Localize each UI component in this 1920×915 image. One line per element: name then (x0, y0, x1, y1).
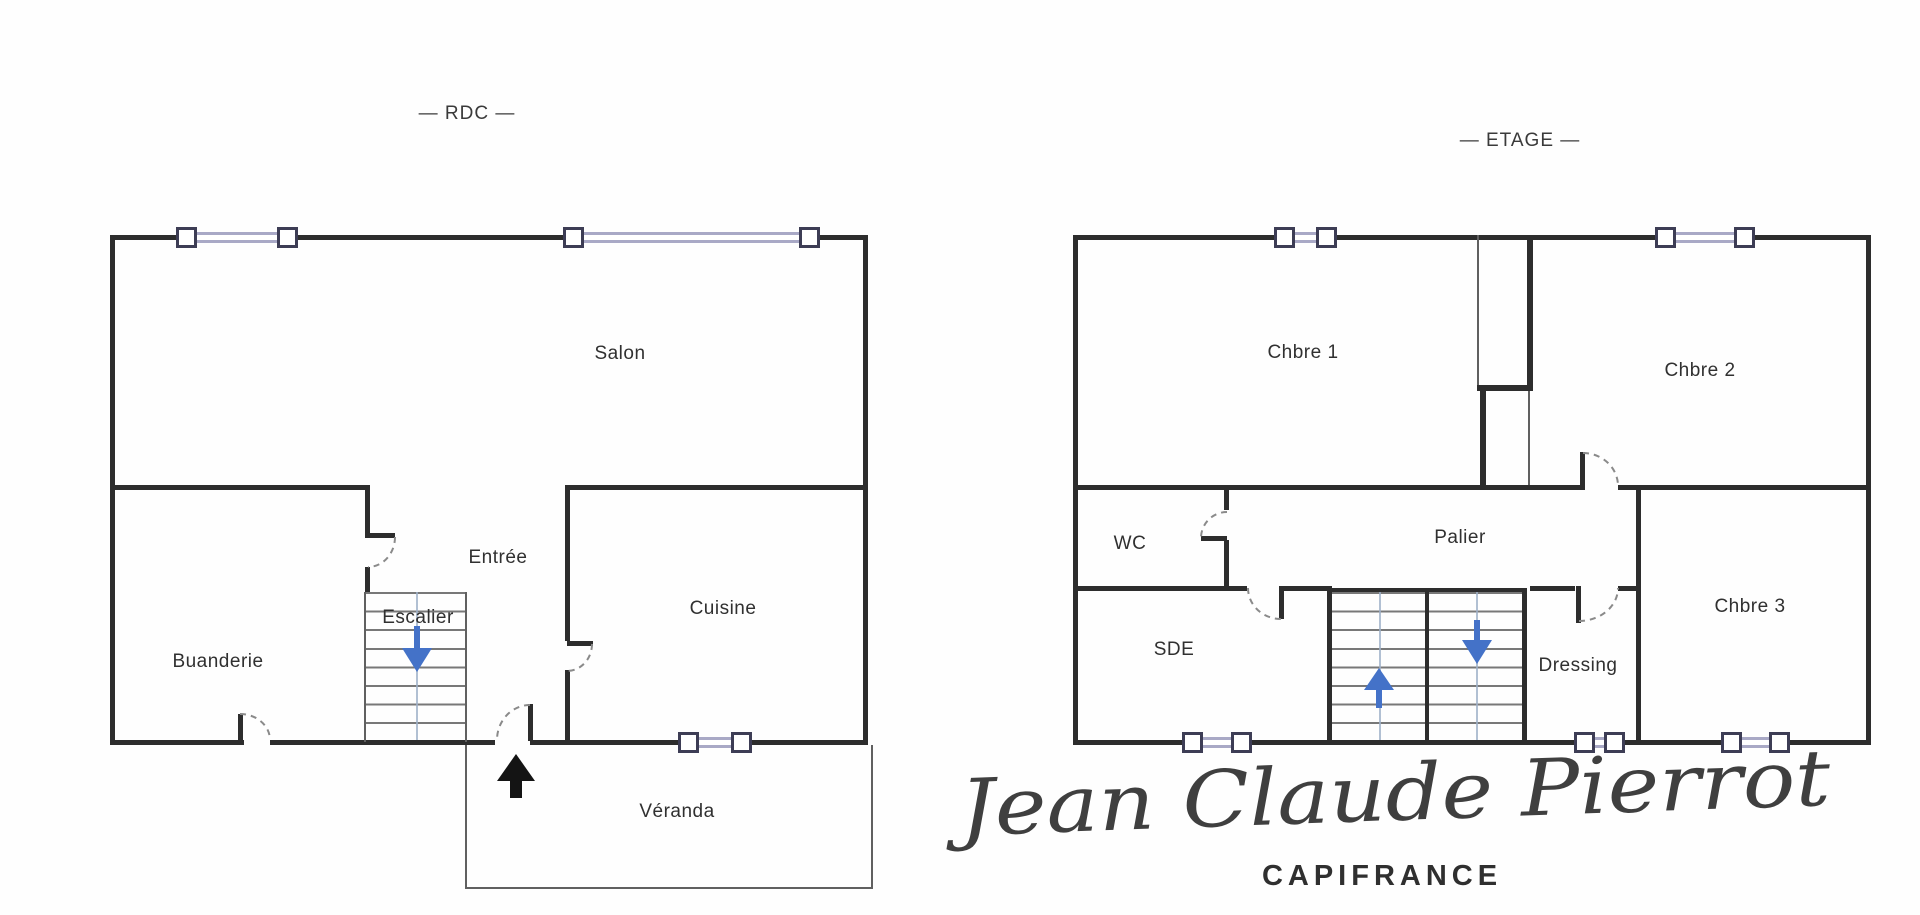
room-label-wc: WC (1114, 533, 1147, 555)
room-label-buanderie: Buanderie (172, 651, 263, 673)
window-icon (1655, 227, 1756, 248)
door-swing-icon (240, 714, 270, 740)
stairs-edge (465, 592, 467, 742)
door-swing-icon (1579, 588, 1618, 621)
door-swing-icon (1583, 453, 1618, 486)
rdc-title: — RDC — (419, 103, 516, 125)
etage-wall-chbre2-upper (1527, 235, 1533, 388)
window-icon (176, 227, 299, 248)
room-label-dressing: Dressing (1539, 655, 1618, 677)
room-label-salon: Salon (594, 343, 645, 365)
veranda-wall-left (465, 745, 467, 889)
rdc-wall-cuisine-lower (565, 670, 570, 745)
room-label-sde: SDE (1154, 639, 1195, 661)
chbre3-wall-left (1636, 485, 1641, 745)
room-label-escalier: Escalier (382, 607, 454, 629)
stairs-icon (1429, 592, 1522, 740)
wc-wall-upper (1224, 485, 1229, 510)
rdc-wall-cuisine-upper (565, 485, 570, 641)
veranda-wall-bottom (465, 887, 873, 889)
etage-wall-middle (1618, 485, 1871, 490)
rdc-outer-wall-right (863, 235, 868, 745)
agency-name: CAPIFRANCE (1252, 860, 1512, 893)
etage-wall-middle (1073, 485, 1585, 490)
wc-wall-lower (1224, 540, 1229, 588)
room-label-chbre1: Chbre 1 (1267, 342, 1338, 364)
duct-line (1477, 235, 1479, 388)
door-swing-icon (1248, 588, 1281, 619)
rdc-wall-salon-cuisine (565, 485, 868, 490)
room-label-veranda: Véranda (639, 801, 714, 823)
duct-line (1528, 391, 1530, 485)
stairs-icon (1332, 592, 1425, 740)
door-swing-icon (567, 644, 592, 671)
window-icon (1182, 732, 1253, 753)
rdc-wall-salon-buanderie (110, 485, 368, 490)
room-label-chbre2: Chbre 2 (1664, 360, 1735, 382)
room-label-palier: Palier (1434, 527, 1486, 549)
window-icon (678, 732, 753, 753)
window-icon (1274, 227, 1338, 248)
rdc-outer-wall-bottom (110, 740, 244, 745)
rdc-wall-stairs-upper (365, 485, 370, 535)
room-label-chbre3: Chbre 3 (1714, 596, 1785, 618)
dressing-wall-top (1530, 586, 1575, 591)
rdc-outer-wall-bottom (270, 740, 495, 745)
agent-signature: Jean Claude Pierrot (817, 732, 1920, 858)
window-icon (563, 227, 821, 248)
sde-wall-top (1073, 586, 1247, 591)
stairs-divider (1425, 592, 1429, 740)
stairwell-wall-right (1522, 588, 1527, 743)
sde-wall-top (1282, 586, 1330, 591)
rdc-outer-wall-left (110, 235, 115, 745)
door-swing-icon (497, 705, 530, 740)
room-label-entree: Entrée (469, 547, 528, 569)
room-label-cuisine: Cuisine (690, 598, 757, 620)
door-swing-icon (1201, 512, 1227, 538)
etage-outer-wall-left (1073, 235, 1078, 745)
door-swing-icon (368, 537, 396, 567)
etage-outer-wall-right (1866, 235, 1871, 745)
rdc-wall-stairs-lower (365, 567, 370, 592)
etage-wall-chbre2-lower (1480, 391, 1486, 487)
etage-title: — ETAGE — (1460, 130, 1581, 152)
floorplan-image: — RDC — (0, 0, 1920, 915)
